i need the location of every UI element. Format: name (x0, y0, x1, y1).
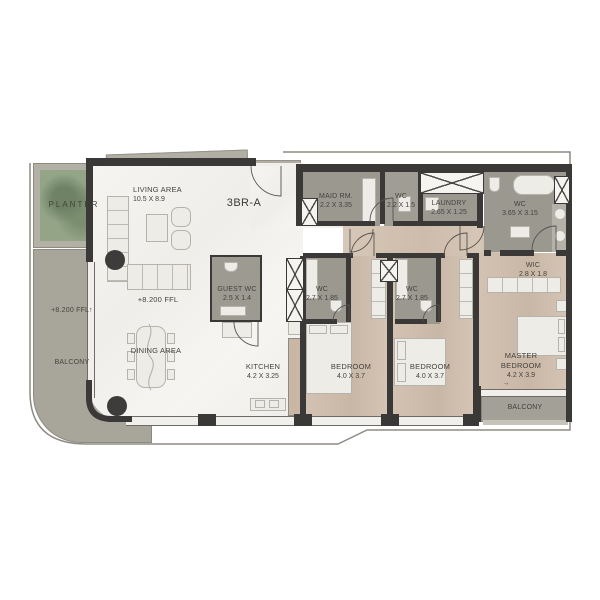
ffl-up-arrow: ↑ (89, 307, 93, 314)
maid-room-label: MAID RM. (306, 192, 366, 201)
unit-title: 3BR-A (214, 196, 274, 210)
master-wc-dims: 3.65 X 3.15 (496, 209, 544, 218)
dining-area-label: DINING AREA (126, 346, 186, 356)
balcony-door-arrow: → (496, 379, 516, 388)
master-bedroom-label: MASTER BEDROOM (490, 351, 552, 371)
laundry-dims: 2.65 X 1.25 (423, 208, 475, 217)
wic-label: WIC (510, 261, 556, 270)
living-area-dims: 10.5 X 8.9 (133, 195, 213, 204)
bedroom1-wc-label: WC (300, 285, 344, 294)
laundry-label: LAUNDRY (423, 199, 475, 208)
wic-dims: 2.8 X 1.8 (510, 270, 556, 279)
maid-room-dims: 2.2 X 3.35 (306, 201, 366, 210)
guest-wc-dims: 2.5 X 1.4 (212, 294, 262, 303)
kitchen-label: KITCHEN (232, 362, 294, 372)
bedroom1-wc-dims: 2.7 X 1.85 (300, 294, 344, 303)
bedroom1-dims: 4.0 X 3.7 (318, 372, 384, 381)
floor-plan: 3BR-A LIVING AREA 10.5 X 8.9 +8.200 FFL … (0, 0, 600, 600)
balcony-left-label: BALCONY (40, 358, 104, 367)
maid-wc-dims: 2.2 X 1.5 (382, 201, 420, 210)
master-wc-label: WC (496, 200, 544, 209)
planter-label: PLANTER (40, 200, 108, 210)
ffl-label-inner: +8.200 FFL (128, 295, 188, 305)
balcony-right-label: BALCONY (492, 403, 558, 412)
kitchen-dims: 4.2 X 3.25 (232, 372, 294, 381)
bedroom2-wc-dims: 2.7 X 1.85 (390, 294, 434, 303)
living-area-label: LIVING AREA (133, 185, 213, 195)
maid-wc-label: WC (382, 192, 420, 201)
guest-wc-label: GUEST WC (212, 285, 262, 294)
bedroom2-wc-label: WC (390, 285, 434, 294)
bedroom1-label: BEDROOM (318, 362, 384, 372)
bedroom2-label: BEDROOM (398, 362, 462, 372)
ffl-label-balcony: +8.200 FFL (51, 307, 89, 314)
bedroom2-dims: 4.0 X 3.7 (398, 372, 462, 381)
